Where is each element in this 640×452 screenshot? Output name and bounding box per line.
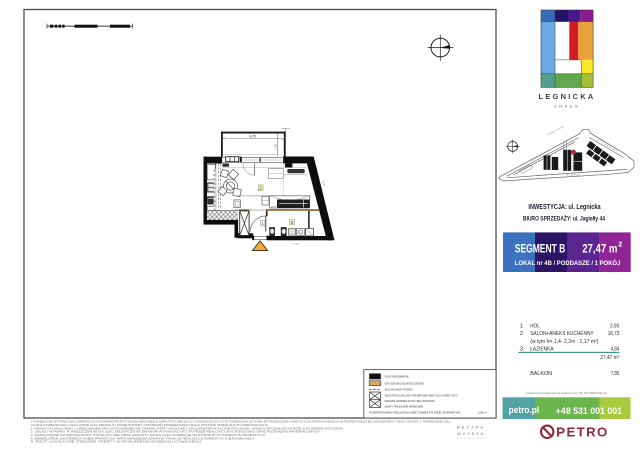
svg-text:4,87: 4,87 [321,180,326,187]
svg-text:1. POWIERZCHNIE UŻYTKOWE LOKAL: 1. POWIERZCHNIE UŻYTKOWE LOKALI ZMIERZON… [31,419,451,424]
svg-text:4. ZAZNACZONE NA RZUCIE PIONY: 4. ZAZNACZONE NA RZUCIE PIONY INSTALACYJ… [31,433,266,437]
svg-text:POWIERZCHNIA POŁOŻONA NIŻEJ NA: POWIERZCHNIA POŁOŻONA NIŻEJ NAWIS PO NIŻ… [369,409,460,414]
svg-text:3: 3 [520,347,524,353]
svg-text:LOKAL nr 4B / PODDASZE / 1: LOKAL nr 4B / PODDASZE / 1 POKÓJ [515,258,621,267]
svg-text:4,05: 4,05 [249,135,256,139]
svg-text:ul. Legnicka: ul. Legnicka [566,172,580,176]
svg-text:SKOS DACHOWY PONIŻEJ: SKOS DACHOWY PONIŻEJ [385,386,413,391]
svg-text:5,08 m²: 5,08 m² [478,410,487,414]
svg-text:ŚCIANY NIEROZBIERALNE: ŚCIANY NIEROZBIERALNE [385,374,409,379]
svg-text:+48 531 001 001: +48 531 001 001 [556,406,623,417]
svg-text:PETRO: PETRO [556,425,608,440]
svg-text:6. RZUT LOKALU NIE STANOWI OFE: 6. RZUT LOKALU NIE STANOWI OFERTY W ROZU… [31,440,203,444]
svg-text:2: 2 [618,242,622,249]
svg-text:7,85: 7,85 [611,371,620,377]
svg-text:petro.pl: petro.pl [509,405,540,415]
svg-text:INWESTYCJA: ul. Legnicka: INWESTYCJA: ul. Legnicka [528,202,601,211]
svg-text:BECZKA: BECZKA [457,425,485,430]
svg-text:(w tym h= 1,4- 2,2m : 1,17 m²): (w tym h= 1,4- 2,2m : 1,17 m²) [530,339,598,345]
svg-text:LEGNICKA: LEGNICKA [539,92,596,101]
svg-text:BIURO SPRZEDAŻY: ul. Jagiełły: BIURO SPRZEDAŻY: ul. Jagiełły 44 [523,215,605,223]
svg-text:ŚCIANY DZIAŁOWE (Z MOŻLIWOŚCIĄ: ŚCIANY DZIAŁOWE (Z MOŻLIWOŚCIĄ DEMONTAŻU… [385,380,425,385]
svg-text:SZACHT/PION LOKALOWY STRUMIEŃ: SZACHT/PION LOKALOWY STRUMIEŃ ZEW. WENTY… [385,393,458,397]
svg-text:SALON+ANEKS KUCHENNY: SALON+ANEKS KUCHENNY [530,331,593,337]
svg-text:powierzchnia lokalu liczona we: powierzchnia lokalu liczona według normy… [526,391,607,395]
svg-text:1: 1 [520,323,523,329]
svg-text:27,47 m²: 27,47 m² [600,355,619,361]
svg-text:SZAFY POLECANE WNĘKOWE: SZAFY POLECANE WNĘKOWE [385,405,424,409]
svg-text:18,73: 18,73 [608,331,620,337]
svg-text:A R C H I T E K C I: A R C H I T E K C I [457,437,489,440]
svg-text:2,95: 2,95 [293,242,299,246]
svg-text:SEGMENT B: SEGMENT B [515,241,566,255]
svg-text:2: 2 [520,331,523,337]
svg-text:HOL: HOL [530,323,540,329]
svg-text:BALKON: BALKON [530,371,552,377]
svg-text:ŁAZIENKA: ŁAZIENKA [530,347,553,353]
svg-text:Posag 7 Panien: Posag 7 Panien [547,124,566,136]
svg-text:27,47 m: 27,47 m [582,241,617,255]
svg-text:URSUS: URSUS [554,103,580,108]
svg-text:WYZSZA: WYZSZA [457,431,485,436]
svg-text:1,35: 1,35 [274,144,278,150]
svg-text:4,84: 4,84 [611,347,620,353]
svg-text:3,90: 3,90 [610,323,620,329]
svg-text:WIDOCZNE GRAŻDZIEŃ SUFITU I BE: WIDOCZNE GRAŻDZIEŃ SUFITU I BELKI STROPO… [385,398,435,403]
